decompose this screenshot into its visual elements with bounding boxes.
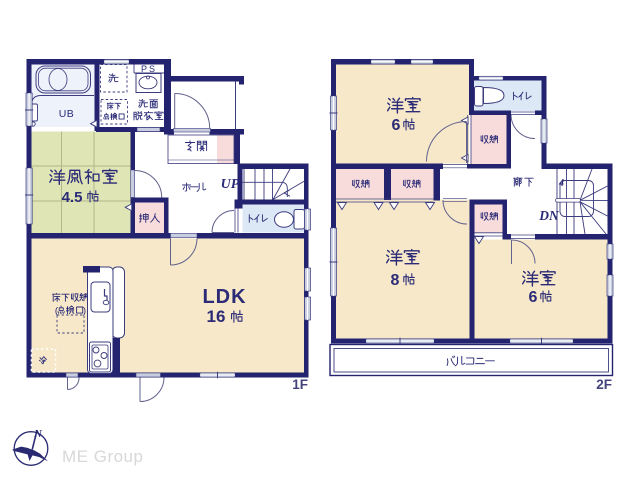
svg-text:2F: 2F: [596, 377, 612, 392]
svg-text:LDK: LDK: [202, 286, 246, 308]
svg-text:4.5: 4.5: [62, 189, 83, 206]
svg-text:UB: UB: [59, 108, 75, 120]
svg-text:8: 8: [391, 272, 400, 289]
svg-text:ME Group: ME Group: [62, 447, 143, 466]
svg-text:1F: 1F: [292, 377, 308, 392]
svg-text:6: 6: [392, 117, 401, 134]
svg-text:): ): [83, 306, 86, 317]
svg-text:16: 16: [207, 307, 226, 326]
svg-text:PS: PS: [141, 64, 157, 74]
svg-text:6: 6: [529, 289, 538, 306]
svg-text:4: 4: [558, 178, 564, 189]
svg-text:DN: DN: [538, 208, 560, 223]
svg-text:UP: UP: [221, 177, 240, 192]
